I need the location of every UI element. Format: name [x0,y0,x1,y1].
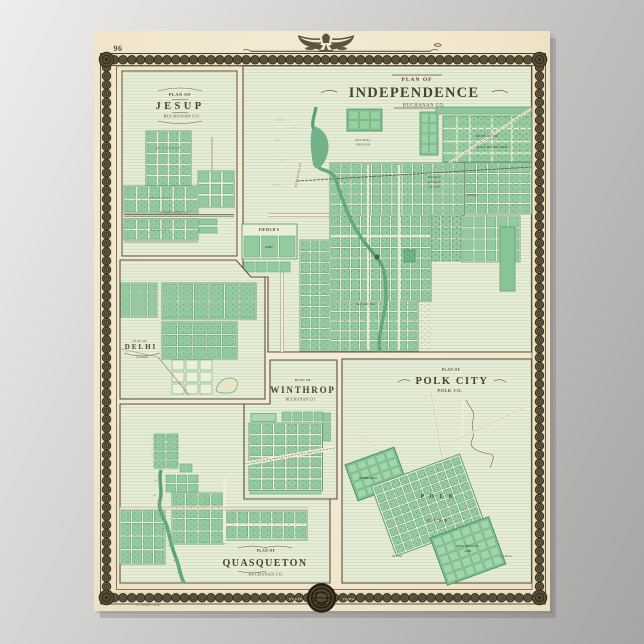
svg-text:STATE: STATE [289,597,303,601]
svg-text:IOWA: IOWA [343,597,355,601]
svg-text:A. T. Andreas, Chicago: A. T. Andreas, Chicago [136,604,161,607]
